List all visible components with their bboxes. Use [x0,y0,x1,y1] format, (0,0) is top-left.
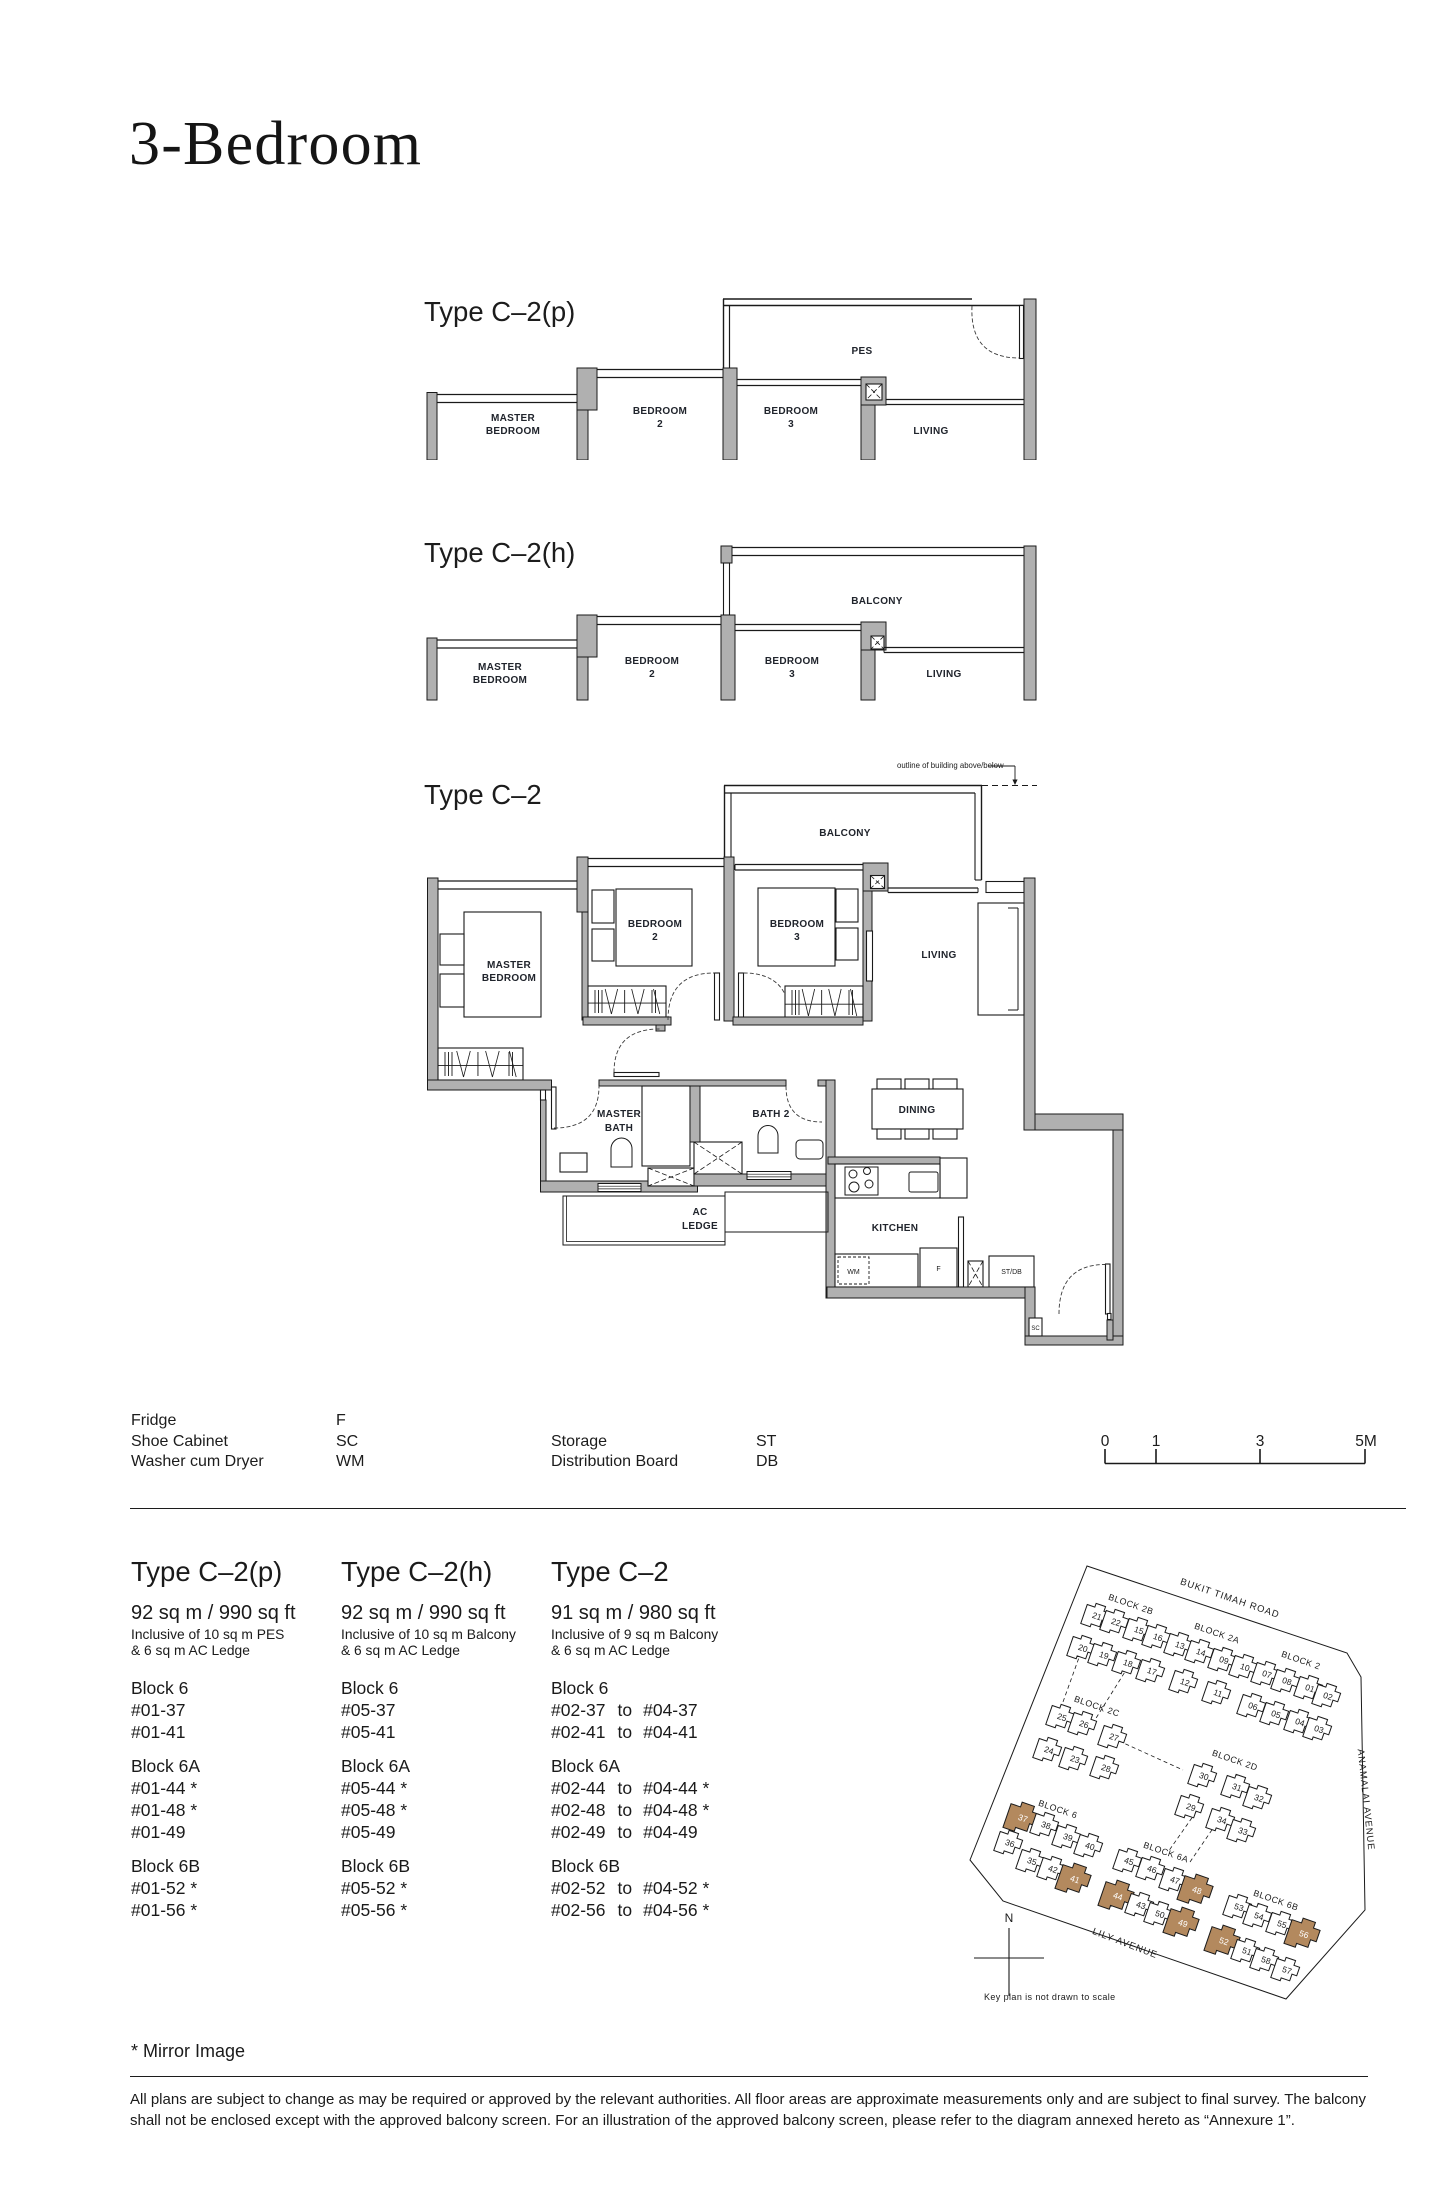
svg-text:BEDROOM: BEDROOM [633,406,687,417]
svg-text:BLOCK 2D: BLOCK 2D [1211,1748,1259,1773]
svg-text:F: F [936,1266,940,1273]
svg-text:BATH: BATH [605,1123,633,1134]
svg-text:5M: 5M [1355,1433,1377,1450]
svg-text:BEDROOM: BEDROOM [625,656,679,667]
svg-text:AC: AC [692,1207,707,1218]
svg-text:outline of building above/belo: outline of building above/below [897,761,1004,770]
svg-text:LIVING: LIVING [921,950,956,961]
svg-text:MASTER: MASTER [478,662,522,673]
svg-text:PES: PES [852,346,873,357]
svg-text:LEDGE: LEDGE [682,1221,718,1232]
svg-text:MASTER: MASTER [491,413,535,424]
svg-text:Type C–2(p): Type C–2(p) [424,296,575,327]
svg-text:3: 3 [1256,1433,1265,1450]
svg-text:KITCHEN: KITCHEN [872,1223,919,1234]
svg-text:BALCONY: BALCONY [851,596,903,607]
svg-text:BEDROOM: BEDROOM [486,426,540,437]
svg-text:LILY AVENUE: LILY AVENUE [1091,1926,1159,1961]
svg-text:LIVING: LIVING [926,669,961,680]
svg-text:Key plan is not drawn to scale: Key plan is not drawn to scale [984,1992,1116,2002]
svg-text:DINING: DINING [899,1105,936,1116]
svg-text:BALCONY: BALCONY [819,828,871,839]
svg-text:ST/DB: ST/DB [1001,1269,1022,1276]
svg-text:SC: SC [1031,1326,1040,1332]
svg-text:BEDROOM: BEDROOM [628,919,682,930]
svg-text:3: 3 [789,669,795,680]
svg-text:0: 0 [1101,1433,1110,1450]
svg-text:3: 3 [794,932,800,943]
svg-text:2: 2 [657,419,663,430]
svg-text:1: 1 [1152,1433,1161,1450]
svg-text:2: 2 [649,669,655,680]
svg-text:Type C–2: Type C–2 [424,779,542,810]
svg-text:BEDROOM: BEDROOM [770,919,824,930]
svg-text:Type C–2(h): Type C–2(h) [424,537,575,568]
svg-text:ANAMALAI AVENUE: ANAMALAI AVENUE [1355,1748,1377,1851]
svg-text:3: 3 [788,419,794,430]
svg-text:MASTER: MASTER [597,1109,641,1120]
svg-text:2: 2 [652,932,658,943]
svg-text:N: N [1005,1911,1014,1925]
svg-text:MASTER: MASTER [487,960,531,971]
svg-text:BEDROOM: BEDROOM [764,406,818,417]
svg-text:LIVING: LIVING [913,426,948,437]
svg-text:BEDROOM: BEDROOM [765,656,819,667]
svg-text:WM: WM [847,1269,860,1276]
svg-text:BEDROOM: BEDROOM [473,675,527,686]
svg-text:BEDROOM: BEDROOM [482,973,536,984]
svg-text:BATH 2: BATH 2 [752,1109,789,1120]
